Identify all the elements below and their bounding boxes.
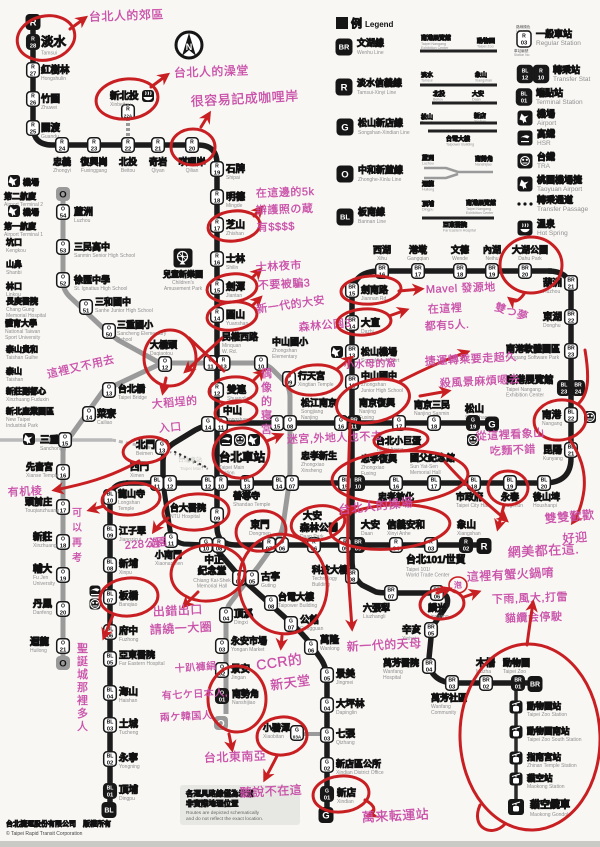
- svg-text:松山機場: 松山機場: [361, 346, 397, 357]
- svg-text:松江南京: 松江南京: [301, 397, 337, 408]
- svg-text:北投: 北投: [119, 156, 137, 167]
- svg-text:R: R: [464, 540, 468, 546]
- svg-text:19: 19: [470, 424, 477, 430]
- svg-text:頂埔: 頂埔: [119, 784, 139, 796]
- svg-text:Jingmei: Jingmei: [336, 680, 353, 686]
- svg-text:人: 人: [77, 720, 88, 733]
- svg-text:徐匯中學: 徐匯中學: [73, 274, 110, 285]
- svg-text:G: G: [295, 728, 299, 734]
- svg-text:城: 城: [77, 668, 88, 681]
- svg-text:Nangang: Nangang: [542, 421, 563, 427]
- svg-text:永春: 永春: [500, 491, 520, 502]
- svg-text:Luzhou: Luzhou: [74, 218, 91, 224]
- svg-text:O: O: [61, 570, 65, 576]
- svg-text:Beitou: Beitou: [121, 168, 135, 174]
- svg-text:G: G: [309, 642, 313, 648]
- svg-text:以: 以: [72, 523, 82, 534]
- svg-text:02: 02: [483, 684, 490, 690]
- svg-text:古亭: 古亭: [261, 571, 281, 583]
- svg-text:BR: BR: [378, 266, 386, 272]
- svg-text:BL: BL: [507, 478, 514, 484]
- svg-text:BL: BL: [154, 478, 161, 484]
- svg-text:Yongan Market: Yongan Market: [231, 647, 265, 653]
- svg-text:Songshan-Xindian Line: Songshan-Xindian Line: [358, 130, 410, 136]
- svg-text:端點站: 端點站: [536, 87, 563, 98]
- svg-text:O: O: [61, 467, 65, 473]
- svg-text:BL: BL: [431, 478, 438, 484]
- svg-text:Sanhe Junior High School: Sanhe Junior High School: [95, 308, 153, 314]
- svg-text:14: 14: [276, 484, 283, 490]
- svg-text:Transfer Stat: Transfer Stat: [553, 76, 591, 83]
- svg-text:大直: 大直: [361, 317, 381, 329]
- svg-text:Liuzhangli: Liuzhangli: [363, 614, 386, 620]
- svg-text:永安市場: 永安市場: [230, 635, 267, 646]
- svg-text:O: O: [220, 641, 224, 647]
- svg-text:Neihu: Neihu: [485, 256, 498, 262]
- svg-text:中正: 中正: [204, 554, 224, 566]
- svg-text:HSR: HSR: [537, 140, 551, 147]
- svg-text:貓空站: 貓空站: [526, 773, 553, 783]
- svg-text:51: 51: [83, 308, 90, 314]
- svg-text:Qilian: Qilian: [186, 168, 199, 174]
- svg-text:O: O: [259, 358, 263, 364]
- svg-text:BL: BL: [107, 754, 114, 760]
- svg-text:Shipai: Shipai: [226, 175, 240, 181]
- svg-text:Airport: Airport: [537, 120, 556, 127]
- svg-text:南港: 南港: [542, 409, 562, 421]
- svg-text:Amusement Park: Amusement Park: [164, 286, 203, 292]
- svg-text:BR: BR: [567, 278, 575, 284]
- svg-text:BL: BL: [107, 720, 114, 726]
- svg-text:松山新店線: 松山新店線: [358, 117, 403, 128]
- svg-text:R: R: [481, 541, 488, 552]
- svg-text:07: 07: [388, 594, 395, 600]
- svg-text:16: 16: [214, 260, 221, 266]
- svg-text:誕: 誕: [77, 655, 88, 668]
- svg-text:迴龍: 迴龍: [29, 636, 50, 648]
- svg-text:Xinzhuang Fuduxin: Xinzhuang Fuduxin: [6, 397, 49, 403]
- svg-text:O: O: [288, 418, 292, 424]
- svg-text:Memorial Hospital: Memorial Hospital: [6, 313, 46, 319]
- svg-text:Exhibition Center: Exhibition Center: [506, 393, 544, 399]
- svg-text:機場: 機場: [23, 207, 39, 217]
- svg-text:G: G: [325, 730, 329, 736]
- svg-text:NTU Hospital: NTU Hospital: [170, 514, 200, 520]
- svg-text:23: 23: [561, 389, 568, 395]
- svg-text:G: G: [269, 598, 273, 604]
- svg-text:16: 16: [60, 473, 67, 479]
- svg-text:O: O: [107, 326, 111, 332]
- svg-text:Touqianzhuang: Touqianzhuang: [25, 508, 59, 514]
- svg-text:24: 24: [59, 146, 66, 152]
- svg-text:O: O: [84, 302, 88, 308]
- svg-text:Daan: Daan: [361, 531, 373, 537]
- svg-text:24: 24: [575, 389, 582, 395]
- svg-text:Tamsui-Xinyi Line: Tamsui-Xinyi Line: [357, 90, 396, 96]
- svg-text:13: 13: [159, 448, 166, 454]
- svg-text:台北人的澡堂: 台北人的澡堂: [174, 62, 249, 80]
- svg-text:三重: 三重: [40, 434, 60, 446]
- svg-text:21: 21: [60, 647, 67, 653]
- svg-text:14: 14: [214, 316, 221, 322]
- svg-text:Xiaobitan: Xiaobitan: [263, 734, 284, 740]
- svg-text:Hongshulin: Hongshulin: [41, 76, 66, 82]
- svg-text:Xingtian Temple: Xingtian Temple: [298, 382, 334, 388]
- svg-text:體育大學: 體育大學: [5, 318, 37, 328]
- svg-text:台電大樓: 台電大樓: [278, 591, 314, 602]
- svg-text:Sport University: Sport University: [5, 335, 41, 341]
- svg-text:R: R: [215, 510, 219, 516]
- svg-text:Xinsheng: Xinsheng: [301, 468, 322, 474]
- svg-text:東湖: 東湖: [542, 311, 563, 323]
- svg-text:BR: BR: [448, 678, 456, 684]
- svg-text:動物園南站: 動物園南站: [527, 726, 570, 736]
- svg-text:07: 07: [288, 625, 295, 631]
- svg-text:Ximen: Ximen: [130, 473, 144, 479]
- svg-text:Xinpu: Xinpu: [119, 570, 132, 576]
- svg-text:G: G: [432, 418, 436, 424]
- svg-text:台北橋: 台北橋: [118, 383, 146, 394]
- svg-text:07: 07: [289, 484, 296, 490]
- svg-text:G: G: [169, 535, 173, 541]
- svg-text:蘆洲: 蘆洲: [74, 206, 93, 218]
- svg-text:School: School: [117, 337, 132, 343]
- svg-text:轉乘站: 轉乘站: [553, 64, 580, 75]
- svg-text:民權西路: 民權西路: [222, 331, 259, 342]
- svg-text:象山: 象山: [457, 519, 476, 531]
- svg-text:W. Rd.: W. Rd.: [222, 349, 237, 355]
- svg-text:指南宮站: 指南宮站: [527, 752, 562, 762]
- svg-text:Taipower Building: Taipower Building: [446, 143, 474, 147]
- svg-text:15: 15: [274, 424, 281, 430]
- svg-text:BL: BL: [205, 478, 212, 484]
- svg-text:關渡: 關渡: [41, 122, 61, 134]
- svg-text:動物園: 動物園: [503, 657, 530, 668]
- svg-text:Guting: Guting: [261, 583, 276, 589]
- svg-text:Transfer Passage: Transfer Passage: [537, 206, 588, 213]
- svg-text:G: G: [206, 419, 210, 425]
- svg-text:第一航廈: 第一航廈: [4, 221, 37, 231]
- svg-text:Taipei Zoo: Taipei Zoo: [477, 45, 494, 49]
- svg-text:12: 12: [522, 75, 529, 81]
- svg-text:BL: BL: [107, 688, 114, 694]
- svg-text:R: R: [156, 140, 160, 146]
- svg-text:BR: BR: [339, 43, 350, 52]
- svg-text:World Trade Center: World Trade Center: [406, 573, 450, 579]
- svg-text:23: 23: [568, 352, 575, 358]
- svg-text:18: 18: [60, 543, 67, 549]
- svg-text:文湖線: 文湖線: [356, 37, 384, 48]
- svg-text:Shandao Temple: Shandao Temple: [233, 502, 271, 508]
- svg-text:文德: 文德: [450, 244, 469, 255]
- svg-text:17: 17: [60, 508, 67, 514]
- svg-text:Sanmin Senior High School: Sanmin Senior High School: [74, 253, 135, 259]
- svg-text:14: 14: [205, 425, 212, 431]
- svg-text:Taishan: Taishan: [6, 377, 23, 383]
- svg-text:R: R: [31, 123, 35, 129]
- svg-text:台北東南亞: 台北東南亞: [204, 748, 267, 765]
- svg-text:10: 10: [218, 484, 225, 490]
- svg-text:大安: 大安: [361, 519, 381, 531]
- svg-text:G: G: [275, 418, 279, 424]
- svg-text:Memorial Hall: Memorial Hall: [197, 584, 228, 590]
- svg-text:20: 20: [60, 610, 67, 616]
- svg-text:R: R: [215, 385, 219, 391]
- svg-text:53: 53: [60, 248, 67, 254]
- svg-text:O: O: [163, 359, 167, 365]
- svg-text:23: 23: [91, 146, 98, 152]
- svg-text:再: 再: [72, 537, 82, 549]
- svg-text:Community: Community: [431, 710, 457, 716]
- svg-text:松山: 松山: [465, 403, 484, 415]
- svg-text:G: G: [325, 789, 329, 795]
- svg-text:行天宮: 行天宮: [297, 370, 325, 381]
- svg-text:and do not reflect the exact l: and do not reflect the exact location.: [186, 816, 263, 822]
- svg-text:三和國中: 三和國中: [95, 296, 131, 307]
- svg-text:大坪林: 大坪林: [336, 698, 365, 710]
- svg-text:G: G: [341, 122, 348, 133]
- svg-text:10: 10: [538, 75, 545, 81]
- svg-text:中山國小: 中山國小: [272, 336, 308, 347]
- svg-text:Taipower Building: Taipower Building: [278, 603, 317, 609]
- svg-text:21: 21: [568, 284, 575, 290]
- svg-text:Nanshijiao: Nanshijiao: [232, 700, 256, 706]
- svg-text:05: 05: [249, 579, 256, 585]
- svg-text:05: 05: [107, 660, 114, 666]
- svg-text:泡: 泡: [454, 580, 463, 590]
- svg-text:O: O: [341, 169, 348, 180]
- svg-text:TRA: TRA: [537, 163, 551, 170]
- svg-text:土城: 土城: [119, 718, 139, 730]
- svg-text:大橋頭: 大橋頭: [150, 339, 178, 350]
- svg-text:港墘: 港墘: [409, 244, 427, 255]
- svg-text:04: 04: [223, 616, 230, 622]
- svg-text:BR: BR: [354, 478, 362, 484]
- svg-text:竹圍: 竹圍: [40, 93, 60, 105]
- svg-text:06: 06: [279, 546, 286, 552]
- svg-text:Taipei Main: Taipei Main: [180, 466, 203, 471]
- svg-text:Routes are depicted schematica: Routes are depicted schematically: [186, 810, 260, 816]
- svg-text:Banqiao: Banqiao: [119, 602, 138, 608]
- svg-text:南港展覽館: 南港展覽館: [421, 34, 451, 42]
- svg-text:多: 多: [77, 706, 88, 720]
- svg-text:09: 09: [107, 533, 114, 539]
- svg-text:新店: 新店: [337, 787, 357, 799]
- svg-text:05: 05: [324, 676, 331, 682]
- svg-text:G: G: [168, 478, 172, 484]
- svg-text:O: O: [61, 207, 65, 213]
- svg-text:Nanjing Sanmin: Nanjing Sanmin: [414, 411, 450, 417]
- svg-text:泰山: 泰山: [5, 366, 22, 376]
- svg-text:Beimen: Beimen: [136, 451, 153, 457]
- svg-text:忠義: 忠義: [53, 156, 71, 167]
- svg-text:R: R: [92, 140, 96, 146]
- svg-text:13: 13: [106, 391, 113, 397]
- svg-text:Shanbi: Shanbi: [6, 270, 22, 276]
- svg-text:林口: 林口: [6, 281, 22, 291]
- svg-text:16: 16: [393, 484, 400, 490]
- svg-text:15: 15: [349, 291, 356, 297]
- svg-text:台大醫院: 台大醫院: [170, 502, 206, 513]
- svg-text:台北車站: 台北車站: [178, 456, 202, 464]
- svg-text:17: 17: [214, 226, 221, 232]
- svg-text:BL: BL: [107, 786, 114, 792]
- svg-text:26: 26: [30, 100, 37, 106]
- svg-text:Regular Station: Regular Station: [536, 40, 581, 47]
- svg-text:Zhuwei: Zhuwei: [41, 105, 57, 111]
- svg-text:12: 12: [214, 391, 221, 397]
- svg-text:16: 16: [338, 424, 345, 430]
- svg-text:麟光: 麟光: [428, 602, 446, 613]
- svg-text:Taoyuan Airport: Taoyuan Airport: [537, 186, 582, 193]
- svg-text:BR: BR: [567, 346, 575, 352]
- svg-text:圓山: 圓山: [226, 309, 245, 321]
- svg-text:07: 07: [107, 598, 114, 604]
- svg-text:新莊: 新莊: [33, 531, 53, 543]
- svg-text:28: 28: [30, 43, 37, 49]
- svg-text:三重國小: 三重國小: [117, 319, 153, 330]
- svg-text:Hospital: Hospital: [383, 675, 401, 681]
- svg-text:貓空纜車: 貓空纜車: [530, 798, 570, 811]
- svg-text:Zhinan Temple Station: Zhinan Temple Station: [527, 763, 577, 769]
- svg-text:三民高中: 三民高中: [74, 241, 110, 252]
- svg-text:菜寮: 菜寮: [96, 408, 117, 420]
- svg-text:Huilong: Huilong: [422, 188, 434, 192]
- svg-text:新莊副都心: 新莊副都心: [6, 386, 46, 396]
- svg-text:新北產業園區: 新北產業園區: [6, 406, 54, 416]
- svg-text:O: O: [63, 435, 67, 441]
- svg-text:N: N: [186, 42, 193, 52]
- svg-text:忠孝新生: 忠孝新生: [301, 450, 337, 461]
- svg-text:R: R: [60, 140, 64, 146]
- svg-text:Taipei City Hall: Taipei City Hall: [456, 503, 489, 509]
- svg-text:University: University: [33, 581, 55, 587]
- svg-text:萬芳醫院: 萬芳醫院: [383, 657, 419, 668]
- svg-text:台北小巨蛋: 台北小巨蛋: [376, 435, 421, 446]
- svg-text:入口: 入口: [158, 421, 182, 435]
- svg-text:Tamsui: Tamsui: [41, 51, 57, 57]
- svg-text:龍山寺: 龍山寺: [118, 488, 145, 499]
- svg-text:Far Eastern Hospital: Far Eastern Hospital: [443, 229, 476, 233]
- svg-text:過: 過: [148, 536, 160, 550]
- svg-text:G: G: [471, 418, 475, 424]
- svg-text:有$$$$: 有$$$$: [257, 219, 295, 234]
- svg-text:Shilin: Shilin: [226, 265, 238, 271]
- svg-text:12: 12: [167, 484, 174, 490]
- svg-text:BL: BL: [104, 808, 114, 815]
- svg-text:台鐵: 台鐵: [537, 151, 555, 162]
- svg-text:BL: BL: [107, 592, 114, 598]
- svg-text:R: R: [215, 192, 219, 198]
- svg-text:G: G: [325, 760, 329, 766]
- svg-text:後山埤: 後山埤: [533, 491, 560, 502]
- svg-text:復興崗: 復興崗: [79, 156, 107, 167]
- svg-text:大安: 大安: [303, 510, 323, 522]
- svg-text:04: 04: [324, 706, 331, 712]
- svg-text:01: 01: [515, 684, 522, 690]
- svg-text:劍潭: 劍潭: [225, 281, 246, 293]
- svg-text:Tamsui: Tamsui: [421, 79, 433, 83]
- svg-text:O: O: [87, 409, 91, 415]
- svg-text:紅樹林: 紅樹林: [41, 64, 70, 76]
- svg-text:22: 22: [568, 318, 575, 324]
- svg-text:中和新蘆線: 中和新蘆線: [358, 164, 403, 175]
- svg-text:中山: 中山: [223, 405, 242, 417]
- svg-text:Xiaonanmen: Xiaonanmen: [155, 561, 183, 567]
- svg-text:可: 可: [72, 508, 82, 519]
- svg-text:BR: BR: [354, 540, 362, 546]
- svg-text:04: 04: [426, 667, 433, 673]
- svg-text:Daqiaotou: Daqiaotou: [150, 351, 173, 357]
- svg-text:亞東醫院: 亞東醫院: [119, 649, 155, 660]
- svg-text:02: 02: [324, 766, 331, 772]
- svg-text:O: O: [59, 189, 66, 200]
- svg-text:BR: BR: [427, 625, 435, 631]
- svg-text:Fuxinggang: Fuxinggang: [81, 168, 107, 174]
- svg-text:Dahu Park: Dahu Park: [518, 256, 542, 262]
- svg-text:O: O: [107, 385, 111, 391]
- svg-text:淡水信義線: 淡水信義線: [357, 77, 402, 88]
- svg-text:七張: 七張: [336, 728, 356, 740]
- svg-text:O: O: [224, 610, 228, 616]
- svg-text:芝山: 芝山: [226, 219, 245, 231]
- svg-text:12: 12: [205, 484, 212, 490]
- svg-text:新埔: 新埔: [119, 558, 139, 570]
- svg-text:出錯出口: 出錯出口: [152, 601, 203, 619]
- svg-text:石牌: 石牌: [225, 163, 246, 175]
- svg-text:17: 17: [431, 484, 438, 490]
- svg-text:15: 15: [62, 441, 69, 447]
- svg-text:R: R: [522, 34, 526, 40]
- svg-text:北門: 北門: [136, 439, 155, 451]
- svg-text:R: R: [31, 37, 35, 43]
- svg-text:新北投: 新北投: [110, 90, 139, 102]
- svg-text:Zhishan: Zhishan: [226, 231, 244, 237]
- svg-text:第二航廈: 第二航廈: [4, 191, 37, 201]
- svg-text:Taishan Guihe: Taishan Guihe: [6, 355, 38, 361]
- svg-text:G: G: [488, 419, 495, 430]
- svg-text:21: 21: [568, 451, 575, 457]
- svg-text:08: 08: [107, 566, 114, 572]
- svg-text:R: R: [215, 282, 219, 288]
- svg-text:05: 05: [428, 631, 435, 637]
- svg-text:劍南路: 劍南路: [361, 284, 389, 295]
- svg-text:BR: BR: [348, 377, 356, 383]
- svg-text:大湖公園: 大湖公園: [512, 244, 548, 255]
- svg-text:BR: BR: [456, 266, 464, 272]
- svg-text:08: 08: [287, 424, 294, 430]
- svg-text:海山: 海山: [119, 686, 138, 698]
- svg-text:Bannan Line: Bannan Line: [358, 219, 386, 225]
- svg-text:Nanjing: Nanjing: [301, 415, 318, 421]
- svg-text:G: G: [289, 619, 293, 625]
- svg-text:Xianse Temple: Xianse Temple: [26, 473, 59, 479]
- svg-text:Daan: Daan: [472, 98, 481, 102]
- svg-text:台北捷運股份有限公司 版權所有: 台北捷運股份有限公司 版權所有: [6, 819, 111, 828]
- svg-text:20: 20: [189, 146, 196, 152]
- svg-text:G: G: [325, 700, 329, 706]
- svg-text:11: 11: [168, 541, 175, 547]
- svg-text:R: R: [267, 540, 271, 546]
- svg-text:54: 54: [60, 213, 67, 219]
- svg-text:Dingxi: Dingxi: [234, 620, 248, 626]
- svg-text:BR: BR: [567, 312, 575, 318]
- svg-text:Donghu: Donghu: [543, 323, 561, 329]
- svg-text:溫泉: 溫泉: [537, 218, 556, 229]
- svg-text:板橋: 板橋: [119, 590, 139, 602]
- svg-text:15: 15: [214, 288, 221, 294]
- svg-text:Dingpu: Dingpu: [119, 796, 135, 802]
